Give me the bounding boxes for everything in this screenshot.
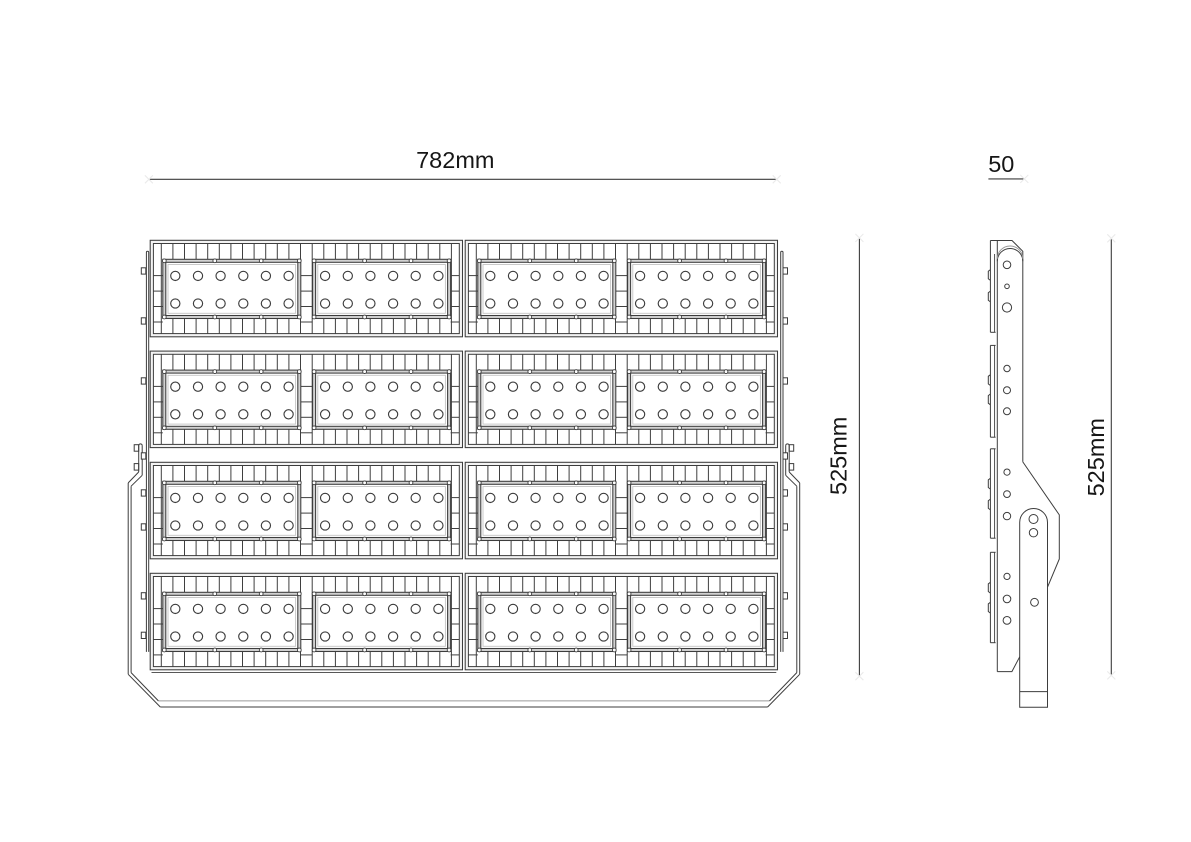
svg-text:782mm: 782mm [416, 147, 494, 173]
svg-text:50: 50 [988, 151, 1014, 177]
svg-text:525mm: 525mm [825, 417, 851, 495]
svg-text:525mm: 525mm [1083, 418, 1109, 496]
